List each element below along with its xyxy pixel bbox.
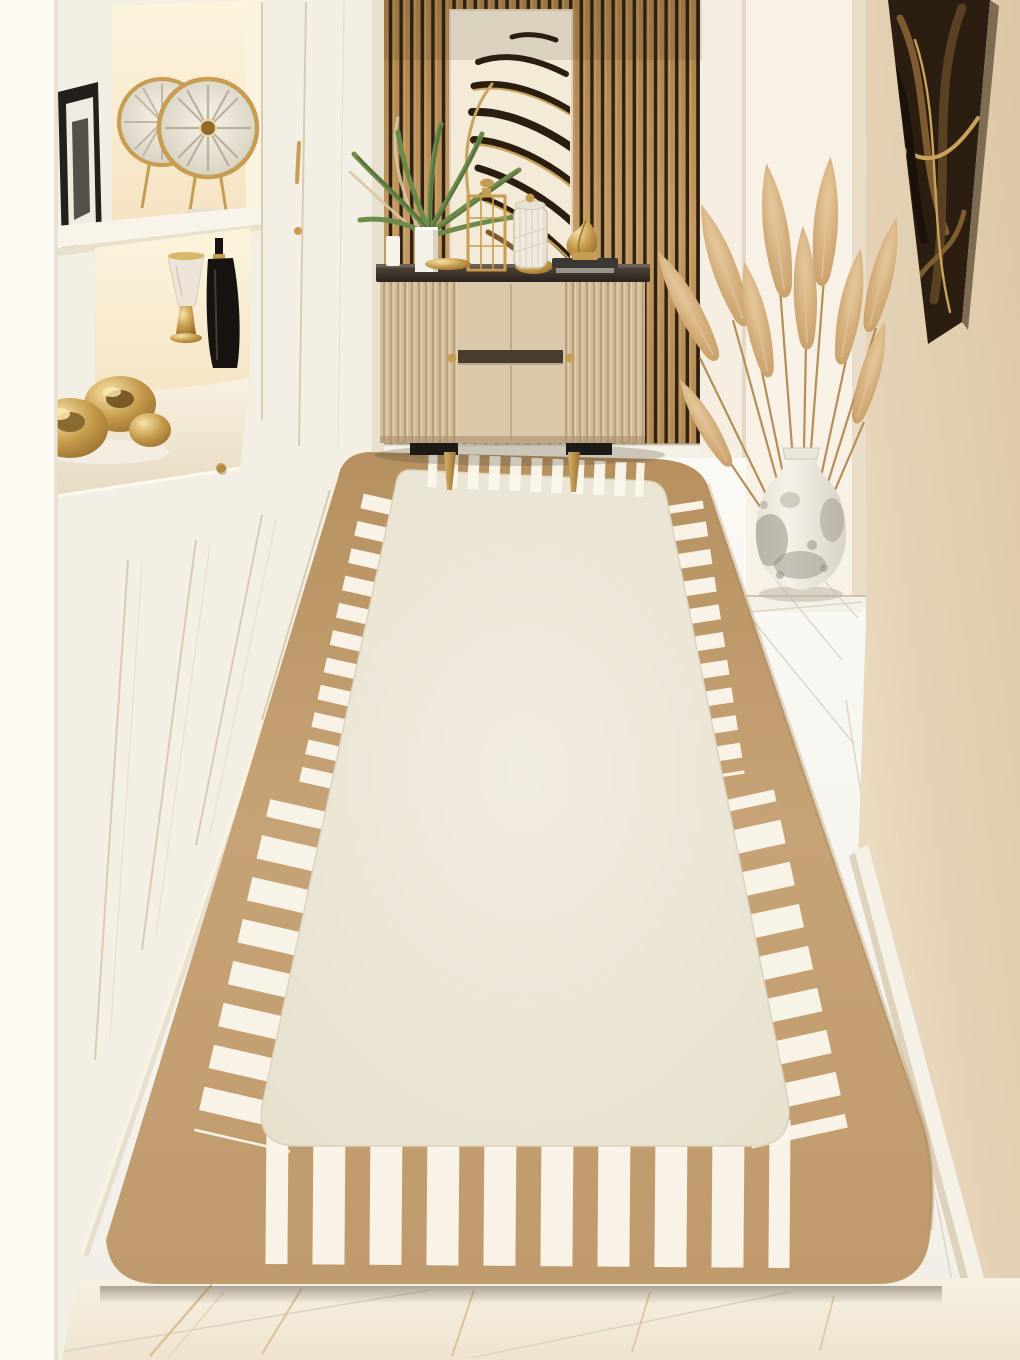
hallway-scene (0, 0, 1020, 1360)
ceiling-shadow (384, 0, 702, 60)
fluted-panel-left (380, 282, 457, 443)
gold-dish (425, 258, 471, 270)
books (552, 258, 618, 273)
fluted-panel-right (565, 282, 645, 443)
cabinet-side-panel (0, 0, 57, 1360)
console-knob (448, 354, 457, 363)
console-knob (566, 354, 575, 363)
gold-bird-icon (480, 179, 494, 188)
door-handle (297, 143, 299, 182)
door-knob (294, 227, 302, 235)
scene-canvas (0, 0, 1020, 1360)
candle (386, 236, 400, 266)
rug-shadow (100, 1286, 942, 1304)
console-recess (458, 350, 563, 365)
